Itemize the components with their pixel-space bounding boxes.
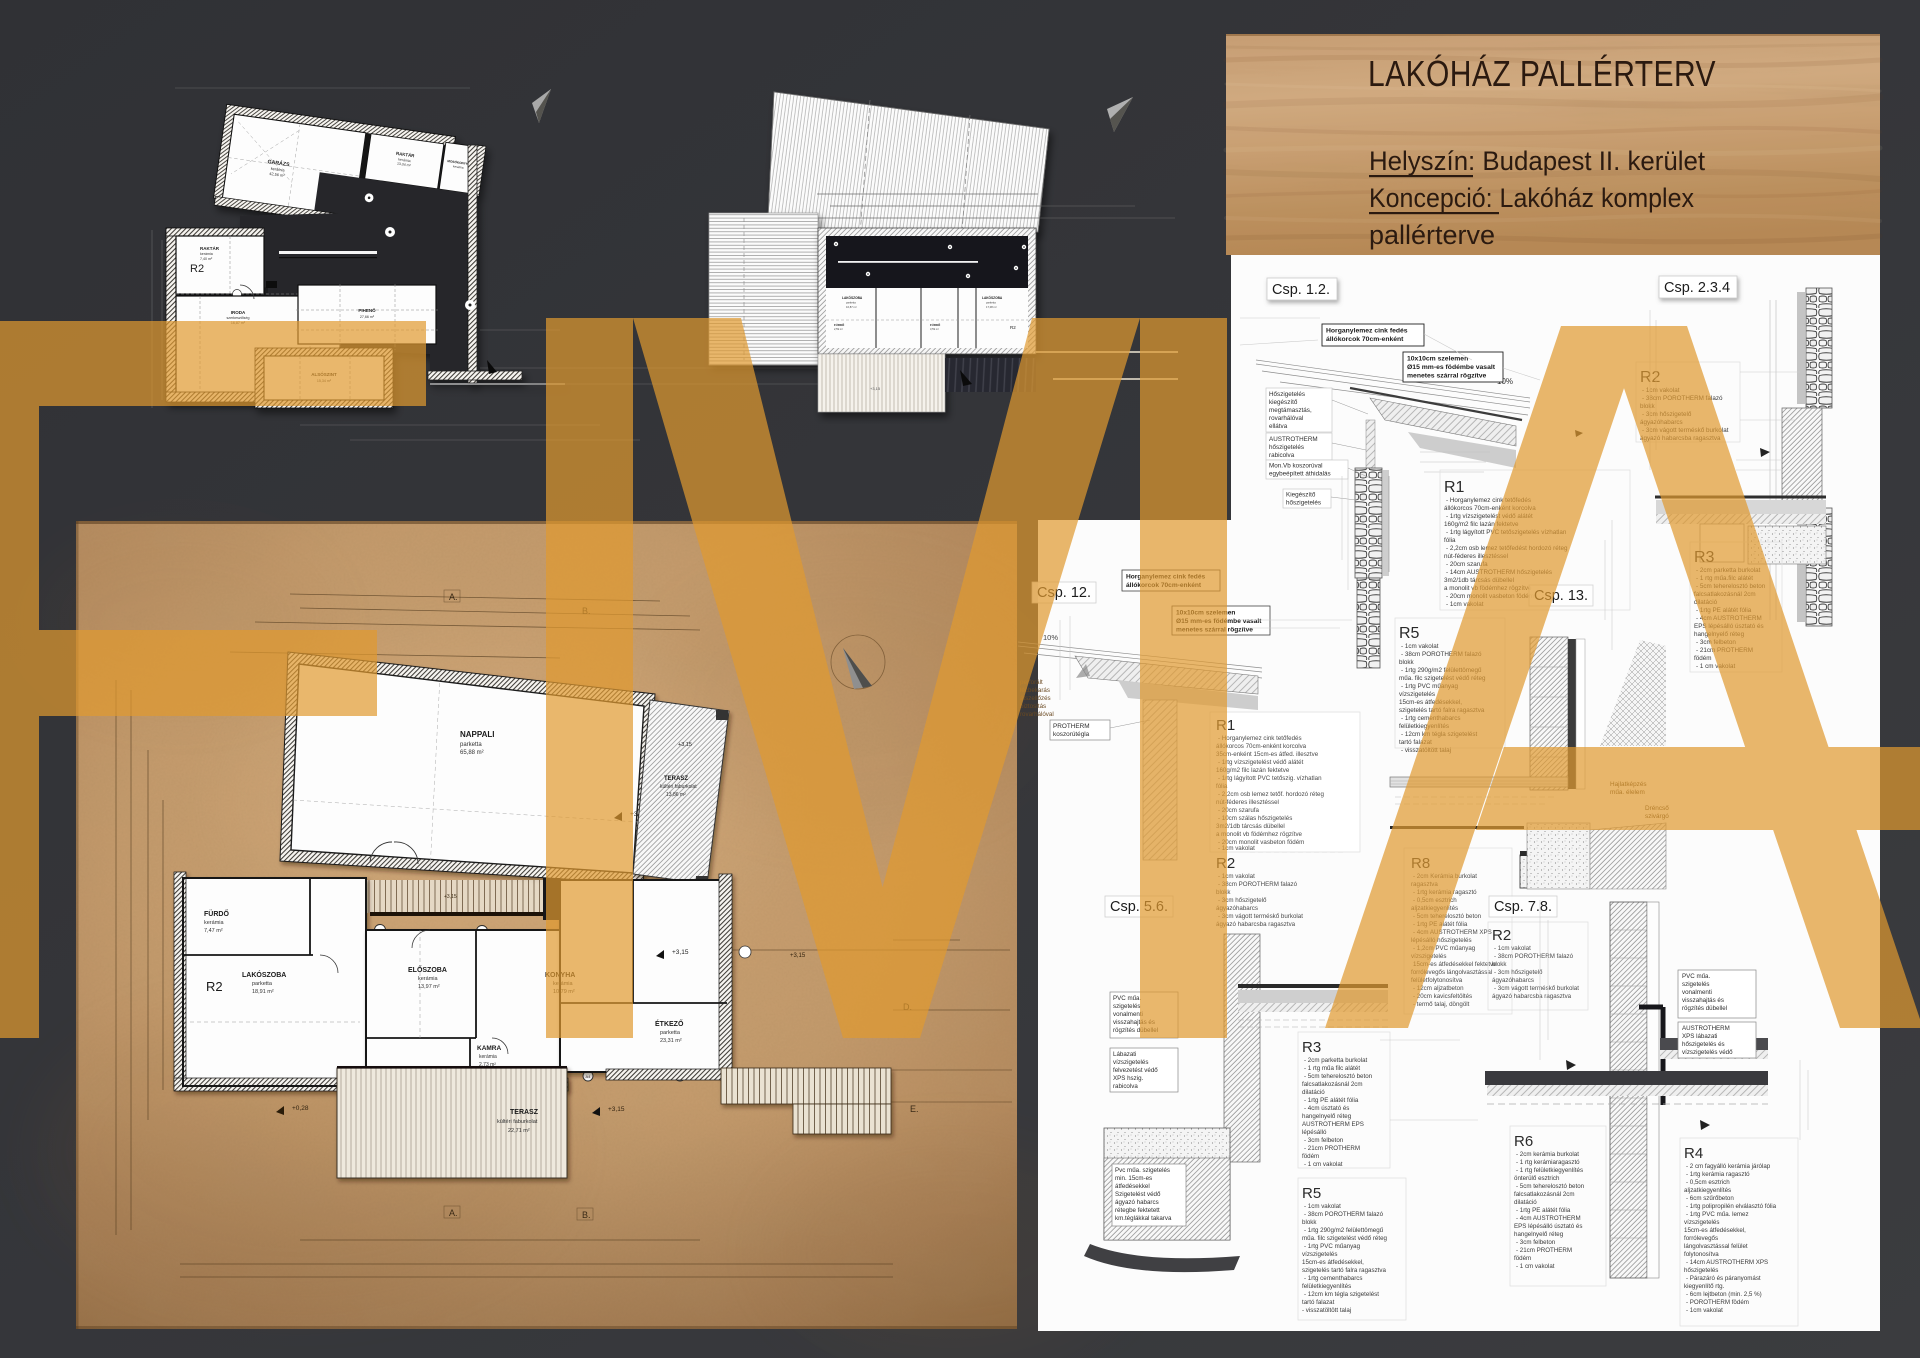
svg-text:65,88 m²: 65,88 m² [460, 750, 484, 756]
svg-text:B.: B. [582, 1210, 591, 1220]
svg-text:R2: R2 [206, 979, 223, 994]
svg-text:TERASZ: TERASZ [510, 1109, 539, 1116]
svg-text:kerámia: kerámia [418, 976, 439, 982]
svg-text:Horganylemez cink fedésállókor: Horganylemez cink fedésállókorcok 70cm-e… [1326, 328, 1408, 344]
svg-text:FÜRDŐ: FÜRDŐ [834, 322, 845, 327]
svg-text:parketta: parketta [986, 301, 996, 305]
svg-text:pallérterve: pallérterve [1369, 220, 1495, 250]
svg-text:7,47 m²: 7,47 m² [204, 928, 223, 934]
svg-text:parketta: parketta [660, 1030, 681, 1036]
svg-text:13,86 m²: 13,86 m² [666, 792, 686, 798]
svg-text:R2: R2 [190, 263, 204, 275]
svg-text:A4: A4 [586, 1074, 592, 1079]
svg-text:A.: A. [449, 592, 458, 602]
svg-text:13,97 m²: 13,97 m² [418, 984, 440, 990]
svg-text:A.: A. [449, 1208, 458, 1218]
svg-text:+3,15: +3,15 [444, 894, 457, 900]
svg-text:R5: R5 [1399, 625, 1420, 642]
svg-text:kültéri faburkolat: kültéri faburkolat [497, 1119, 538, 1125]
svg-text:16,87 m²: 16,87 m² [846, 305, 857, 309]
svg-text:+3,15: +3,15 [870, 386, 881, 391]
svg-text:ELŐSZOBA: ELŐSZOBA [408, 965, 447, 974]
svg-text:+0,28: +0,28 [292, 1105, 309, 1112]
svg-text:Mon.Vb koszorúvalegybeépített: Mon.Vb koszorúvalegybeépített áthidalás [1269, 463, 1331, 478]
svg-text:23,31 m²: 23,31 m² [660, 1038, 682, 1044]
svg-text:ÉTKEZŐ: ÉTKEZŐ [655, 1019, 684, 1028]
svg-text:3,59 m²: 3,59 m² [930, 327, 939, 331]
svg-text:+3,15: +3,15 [608, 1106, 625, 1113]
svg-text:PIHENŐ: PIHENŐ [358, 307, 376, 313]
svg-text:FÜRDŐ: FÜRDŐ [930, 322, 941, 327]
svg-text:R1: R1 [1444, 479, 1465, 496]
svg-text:Csp. 2.3.4: Csp. 2.3.4 [1664, 280, 1730, 296]
svg-text:18,91 m²: 18,91 m² [252, 989, 274, 995]
svg-text:R4: R4 [1684, 1145, 1703, 1162]
svg-text:szerkesztőség: szerkesztőség [227, 316, 250, 320]
svg-text:R2: R2 [1010, 325, 1016, 330]
svg-text:R5: R5 [1302, 1185, 1321, 1202]
svg-text:2,59 m²: 2,59 m² [834, 327, 843, 331]
svg-text:Koncepció: Lakóház komplex: Koncepció: Lakóház komplex [1369, 183, 1694, 213]
svg-text:FÜRDŐ: FÜRDŐ [204, 909, 229, 918]
svg-text:+3,15: +3,15 [678, 742, 692, 748]
svg-text:kerámia: kerámia [204, 920, 225, 926]
svg-text:LAKÓSZOBA: LAKÓSZOBA [842, 295, 863, 300]
svg-text:LAKÓSZOBA: LAKÓSZOBA [242, 970, 286, 979]
svg-text:Csp. 1.2.: Csp. 1.2. [1272, 282, 1330, 298]
svg-text:kerámia: kerámia [200, 252, 213, 256]
svg-text:TERASZ: TERASZ [664, 776, 688, 782]
svg-text:10%: 10% [1043, 633, 1058, 642]
svg-text:27,66 m²: 27,66 m² [360, 315, 375, 319]
svg-text:KAMRA: KAMRA [477, 1045, 501, 1052]
svg-text:R2: R2 [1492, 927, 1511, 944]
svg-text:LAKÓHÁZ PALLÉRTERV: LAKÓHÁZ PALLÉRTERV [1368, 53, 1716, 94]
svg-text:Helyszín: Budapest II. kerület: Helyszín: Budapest II. kerület [1369, 146, 1705, 176]
svg-text:RAKTÁR: RAKTÁR [200, 245, 220, 251]
svg-text:+3,15: +3,15 [790, 953, 806, 959]
svg-text:22,71 m²: 22,71 m² [508, 1128, 530, 1134]
svg-text:IRODA: IRODA [231, 310, 246, 315]
svg-text:kerámia: kerámia [479, 1054, 497, 1060]
svg-text:PROTHERMkoszorútégla: PROTHERMkoszorútégla [1053, 723, 1090, 738]
svg-text:parketta: parketta [846, 301, 856, 305]
svg-text:LAKÓSZOBA: LAKÓSZOBA [982, 295, 1003, 300]
svg-text:parketta: parketta [252, 981, 273, 987]
svg-text:E.: E. [910, 1104, 919, 1114]
svg-text:R3: R3 [1302, 1039, 1321, 1056]
svg-text:+3,15: +3,15 [672, 949, 689, 956]
svg-text:Csp. 7.8.: Csp. 7.8. [1494, 899, 1552, 915]
svg-text:parketta: parketta [460, 742, 482, 748]
svg-text:7,40 m²: 7,40 m² [200, 257, 213, 261]
svg-text:kültéri faburkolat: kültéri faburkolat [660, 784, 697, 790]
svg-text:NAPPALI: NAPPALI [460, 730, 495, 739]
svg-text:R6: R6 [1514, 1133, 1533, 1150]
svg-text:17,08 m²: 17,08 m² [986, 305, 997, 309]
